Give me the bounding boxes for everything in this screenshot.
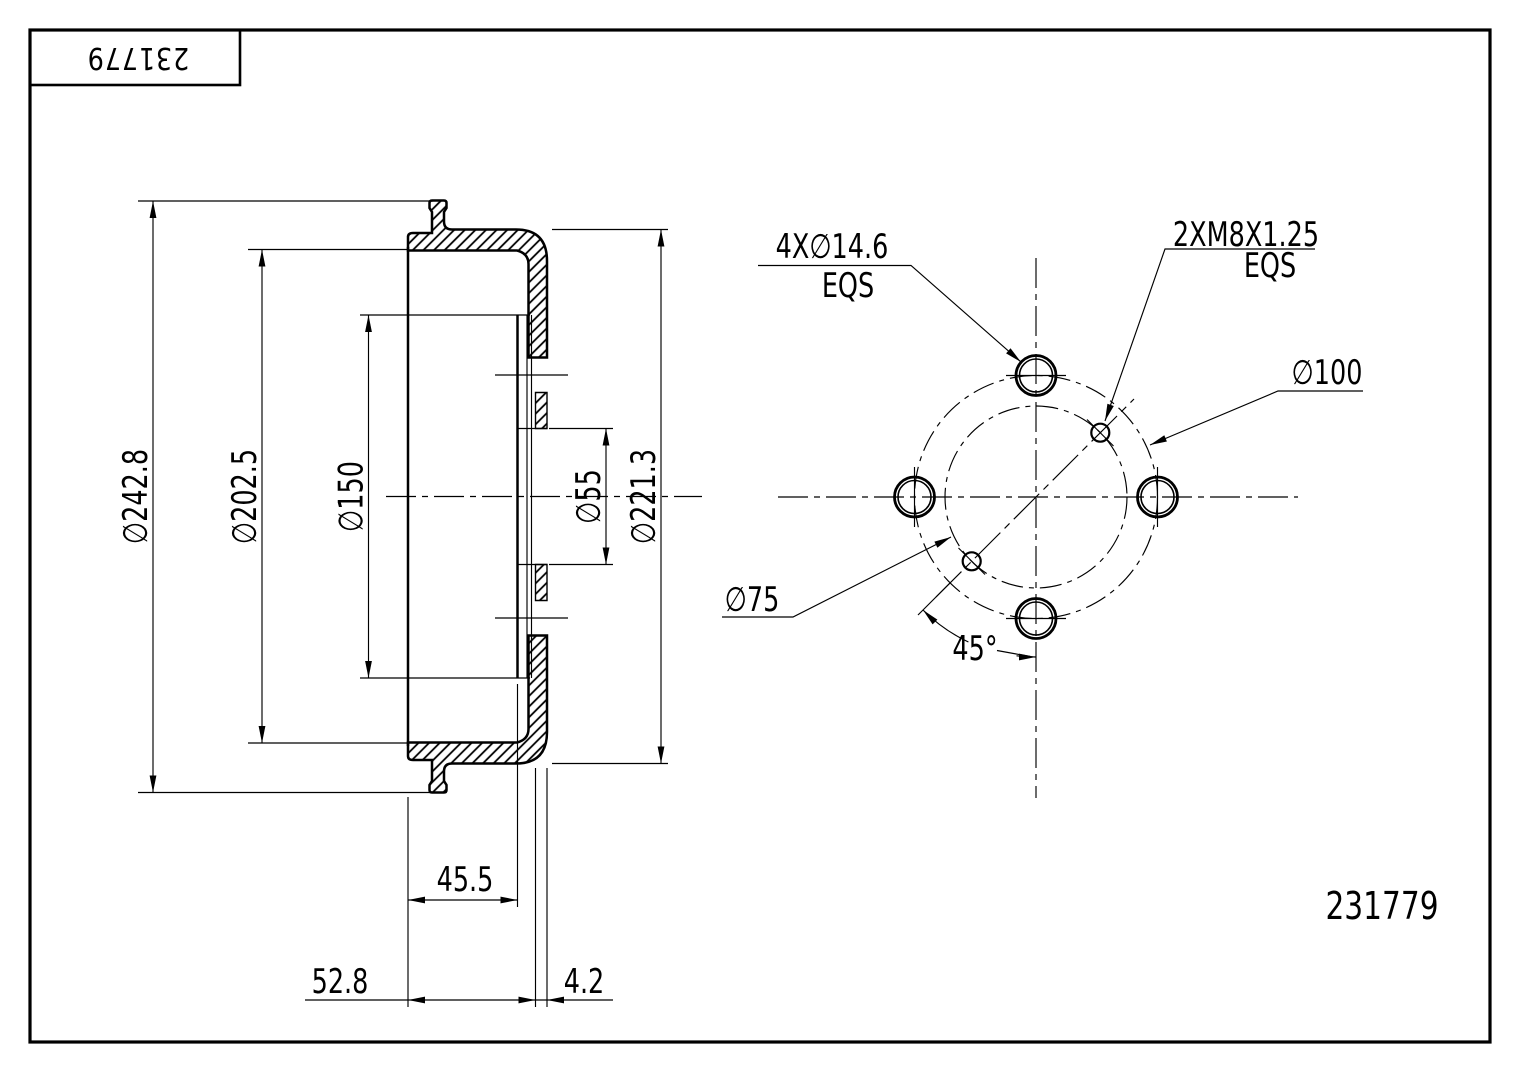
- thread-circle-label: ∅75: [725, 580, 780, 620]
- drawing-canvas: 231779 ∅242.8: [0, 0, 1527, 1080]
- dim-label-d242: ∅242.8: [116, 449, 156, 544]
- callout-thread-circle: ∅75: [722, 537, 951, 620]
- dim-label-d55: ∅55: [569, 469, 609, 524]
- dim-label-w455: 45.5: [437, 860, 494, 900]
- dim-label-d150: ∅150: [332, 461, 372, 532]
- footer-part-number: 231779: [1325, 884, 1438, 929]
- bolt-holes-eqs-label: EQS: [822, 266, 874, 306]
- callout-thread-holes: 2XM8X1.25 EQS: [1105, 215, 1319, 421]
- callout-bolt-circle: ∅100: [1150, 353, 1363, 445]
- dim-label-w528: 52.8: [312, 962, 369, 1002]
- title-block-part-number: 231779: [87, 40, 189, 76]
- title-block: 231779: [30, 30, 240, 85]
- front-view: 4X∅14.6 EQS 2XM8X1.25 EQS ∅100 ∅75: [722, 215, 1363, 798]
- flange-lower-piece: [536, 565, 548, 601]
- bolt-holes-label: 4X∅14.6: [776, 227, 889, 267]
- callout-bolt-holes: 4X∅14.6 EQS: [758, 227, 1021, 362]
- flange-upper-piece: [536, 393, 548, 429]
- section-view: ∅242.8 ∅202.5 ∅150 ∅55 ∅221.3: [116, 201, 702, 1008]
- drawing-sheet: 231779 ∅242.8: [0, 0, 1527, 1080]
- bolt-circle-label: ∅100: [1292, 353, 1363, 393]
- angle-label: 45°: [952, 629, 997, 669]
- section-bottom-half: [408, 636, 547, 793]
- dim-label-w42: 4.2: [564, 962, 605, 1002]
- dim-label-d202: ∅202.5: [225, 449, 265, 544]
- thread-eqs-label: EQS: [1244, 246, 1296, 286]
- dim-label-d221: ∅221.3: [624, 449, 664, 544]
- section-top-half: [408, 201, 547, 358]
